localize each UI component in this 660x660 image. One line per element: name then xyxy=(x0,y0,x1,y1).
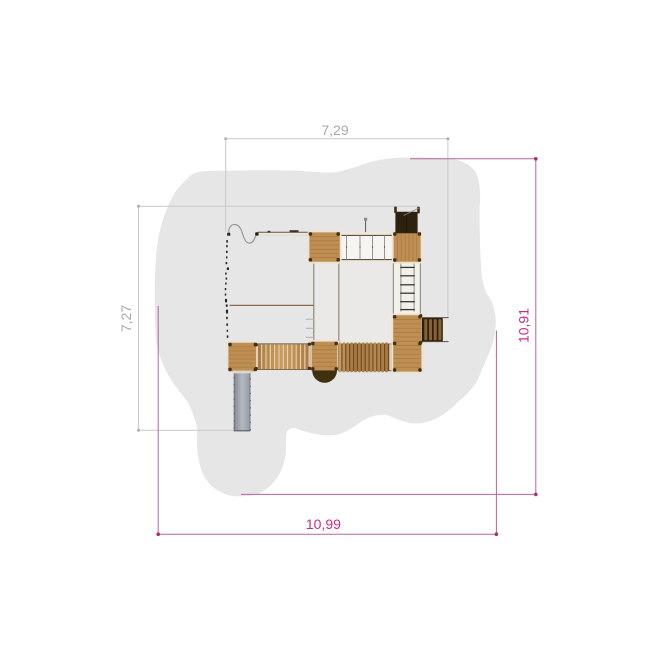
svg-text:7,29: 7,29 xyxy=(321,122,348,138)
svg-text:10,91: 10,91 xyxy=(516,308,532,343)
svg-text:10,99: 10,99 xyxy=(306,516,341,532)
svg-text:7,27: 7,27 xyxy=(118,305,134,332)
